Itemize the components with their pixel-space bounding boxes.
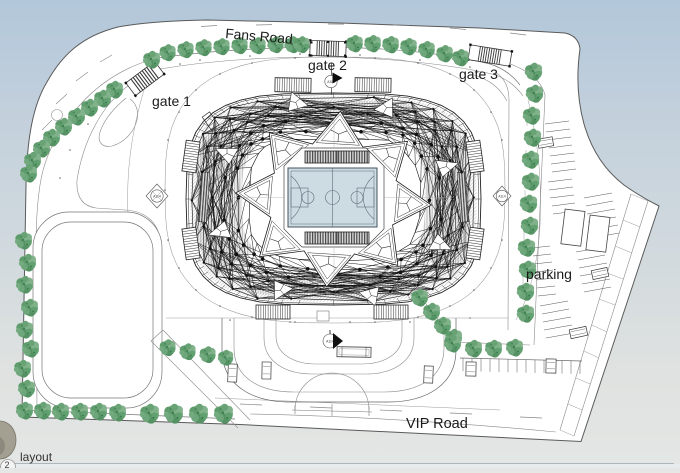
svg-text:A114: A114 xyxy=(498,195,505,199)
svg-text:2: 2 xyxy=(5,460,10,468)
svg-text:layout: layout xyxy=(20,450,53,464)
svg-text:A114: A114 xyxy=(153,195,161,199)
svg-text:gate 1: gate 1 xyxy=(152,93,191,109)
svg-text:gate 2: gate 2 xyxy=(308,57,347,73)
svg-text:VIP Road: VIP Road xyxy=(406,416,468,432)
svg-text:gate 3: gate 3 xyxy=(459,66,498,82)
svg-text:parking: parking xyxy=(526,266,572,282)
svg-text:A114: A114 xyxy=(326,340,334,344)
